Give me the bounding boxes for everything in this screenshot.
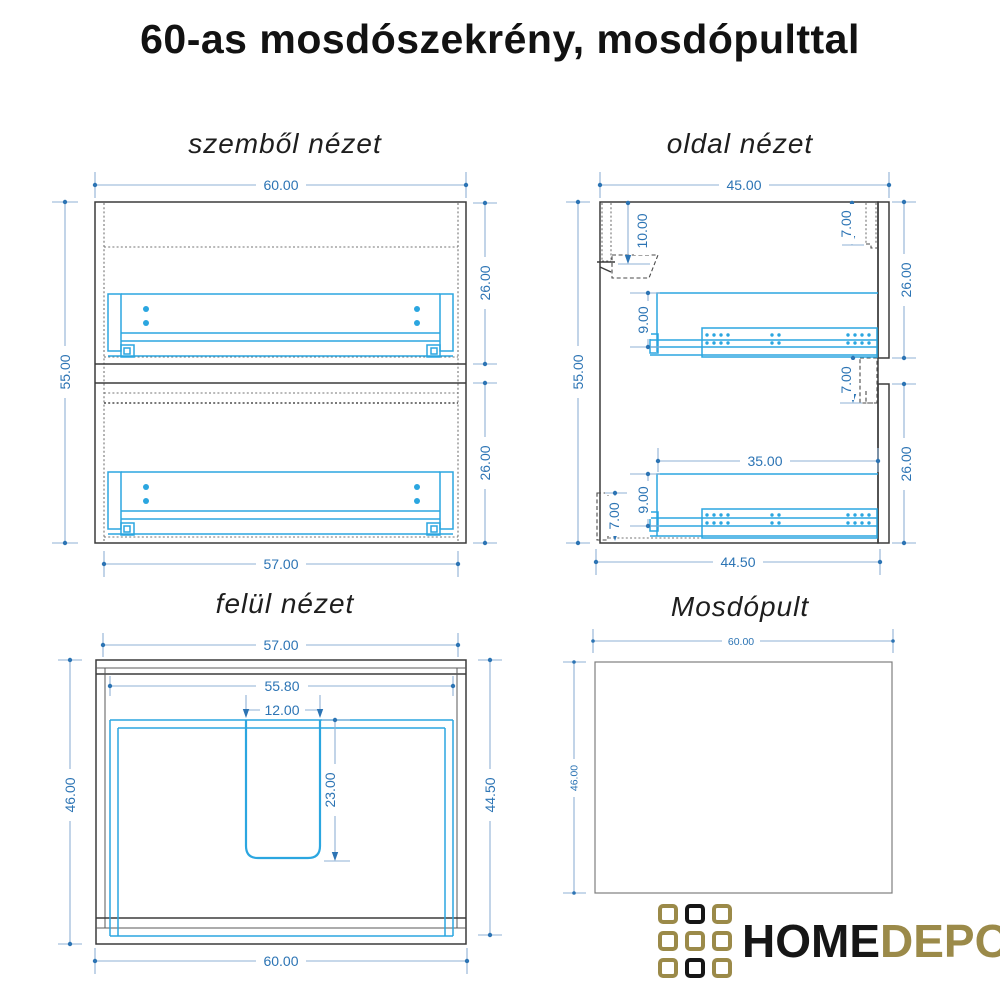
dim-label: 57.00 [263,637,298,653]
dim-top-depth-left: 46.00 [58,658,82,946]
rail-dots [705,513,870,524]
dim-label: 46.00 [569,765,581,791]
dim-side-front-gap: 7.00 [838,356,862,403]
front-view: szemből nézet [52,128,497,577]
logo-grid-square [658,904,678,924]
side-view-bottom-drawer [650,474,878,538]
logo-wordmark: HOMEDEPO [742,904,1000,979]
dim-label: 60.00 [263,177,298,193]
dim-front-drawer-bottom: 26.00 [473,381,497,545]
front-view-title: szemből nézet [188,128,382,159]
drain-channel [246,720,320,858]
dim-side-height-left: 55.00 [566,200,590,545]
logo-grid-square [658,958,678,978]
counter-view-title: Mosdópult [671,591,809,622]
dim-label: 7.00 [838,366,854,393]
front-view-cabinet-outline [95,202,466,543]
dim-label: 26.00 [898,446,914,481]
top-view: felül nézet 57.00 [58,588,502,974]
dim-top-width-top: 57.00 [101,633,460,657]
dim-top-channel-width: 12.00 [243,695,323,718]
dim-label: 7.00 [838,210,854,237]
dim-label: 7.00 [606,502,622,529]
side-view-title: oldal nézet [667,128,814,159]
dim-top-width-bottom: 60.00 [93,948,469,974]
dim-label: 55.00 [570,354,586,389]
dim-label: 60.00 [728,636,754,648]
rail-dots [705,333,870,344]
front-view-top-drawer [108,294,453,357]
dim-counter-depth-left: 46.00 [563,660,586,895]
dim-front-height-left: 55.00 [52,200,78,545]
technical-drawing: szemből nézet [0,0,1000,1000]
dim-side-plinth: 7.00 [605,491,627,541]
dim-label: 55.00 [57,354,73,389]
dim-side-slide-length: 35.00 [656,448,880,472]
dim-label: 57.00 [263,556,298,572]
dim-side-drawer-top: 26.00 [892,200,916,360]
dim-front-drawer-top: 26.00 [473,201,497,366]
dim-label: 45.00 [726,177,761,193]
dim-side-depth-top: 45.00 [598,172,891,198]
logo-grid-square [685,958,705,978]
logo-text-depo: DEPO [880,915,1000,967]
dim-label: 12.00 [264,702,299,718]
dim-label: 10.00 [634,213,650,248]
logo-grid-square [685,931,705,951]
dim-front-width-top: 60.00 [93,172,468,198]
logo-grid-square [685,904,705,924]
top-view-title: felül nézet [216,588,355,619]
homedepo-logo: HOMEDEPO [658,904,1000,979]
dim-label: 35.00 [747,453,782,469]
dim-side-front-top-offset: 7.00 [838,201,864,245]
dim-top-depth-right: 44.50 [478,658,502,937]
dim-front-width-bottom: 57.00 [102,551,460,577]
dim-side-drawer-bottom: 26.00 [892,382,916,545]
logo-grid-square [712,931,732,951]
counter-outline [595,662,892,893]
dim-counter-width-top: 60.00 [591,629,895,653]
side-view-top-drawer [650,293,878,357]
dim-label: 46.00 [62,777,78,812]
front-view-bottom-drawer [108,472,453,535]
dim-label: 55.80 [264,678,299,694]
dim-label: 44.50 [482,777,498,812]
dim-label: 26.00 [898,262,914,297]
dim-label: 9.00 [635,486,651,513]
dim-label: 60.00 [263,953,298,969]
side-view: oldal nézet [566,128,916,575]
logo-grid-square [712,904,732,924]
dim-side-depth-bottom: 44.50 [594,549,882,575]
dim-side-rail-drop: 10.00 [618,201,650,264]
dim-side-box-bottom: 9.00 [630,472,660,528]
dim-label: 44.50 [720,554,755,570]
top-view-basin [110,720,453,936]
dim-top-channel-depth: 23.00 [322,718,350,861]
dim-label: 26.00 [477,445,493,480]
dim-label: 23.00 [322,772,338,807]
dim-label: 26.00 [477,265,493,300]
logo-grid-square [712,958,732,978]
counter-view: Mosdópult 60.00 46.00 [563,591,895,895]
dim-top-width-inner: 55.80 [108,676,455,696]
logo-grid-square [658,931,678,951]
dim-label: 9.00 [635,306,651,333]
logo-text-home: HOME [742,915,880,967]
logo-grid-icon [658,904,733,979]
